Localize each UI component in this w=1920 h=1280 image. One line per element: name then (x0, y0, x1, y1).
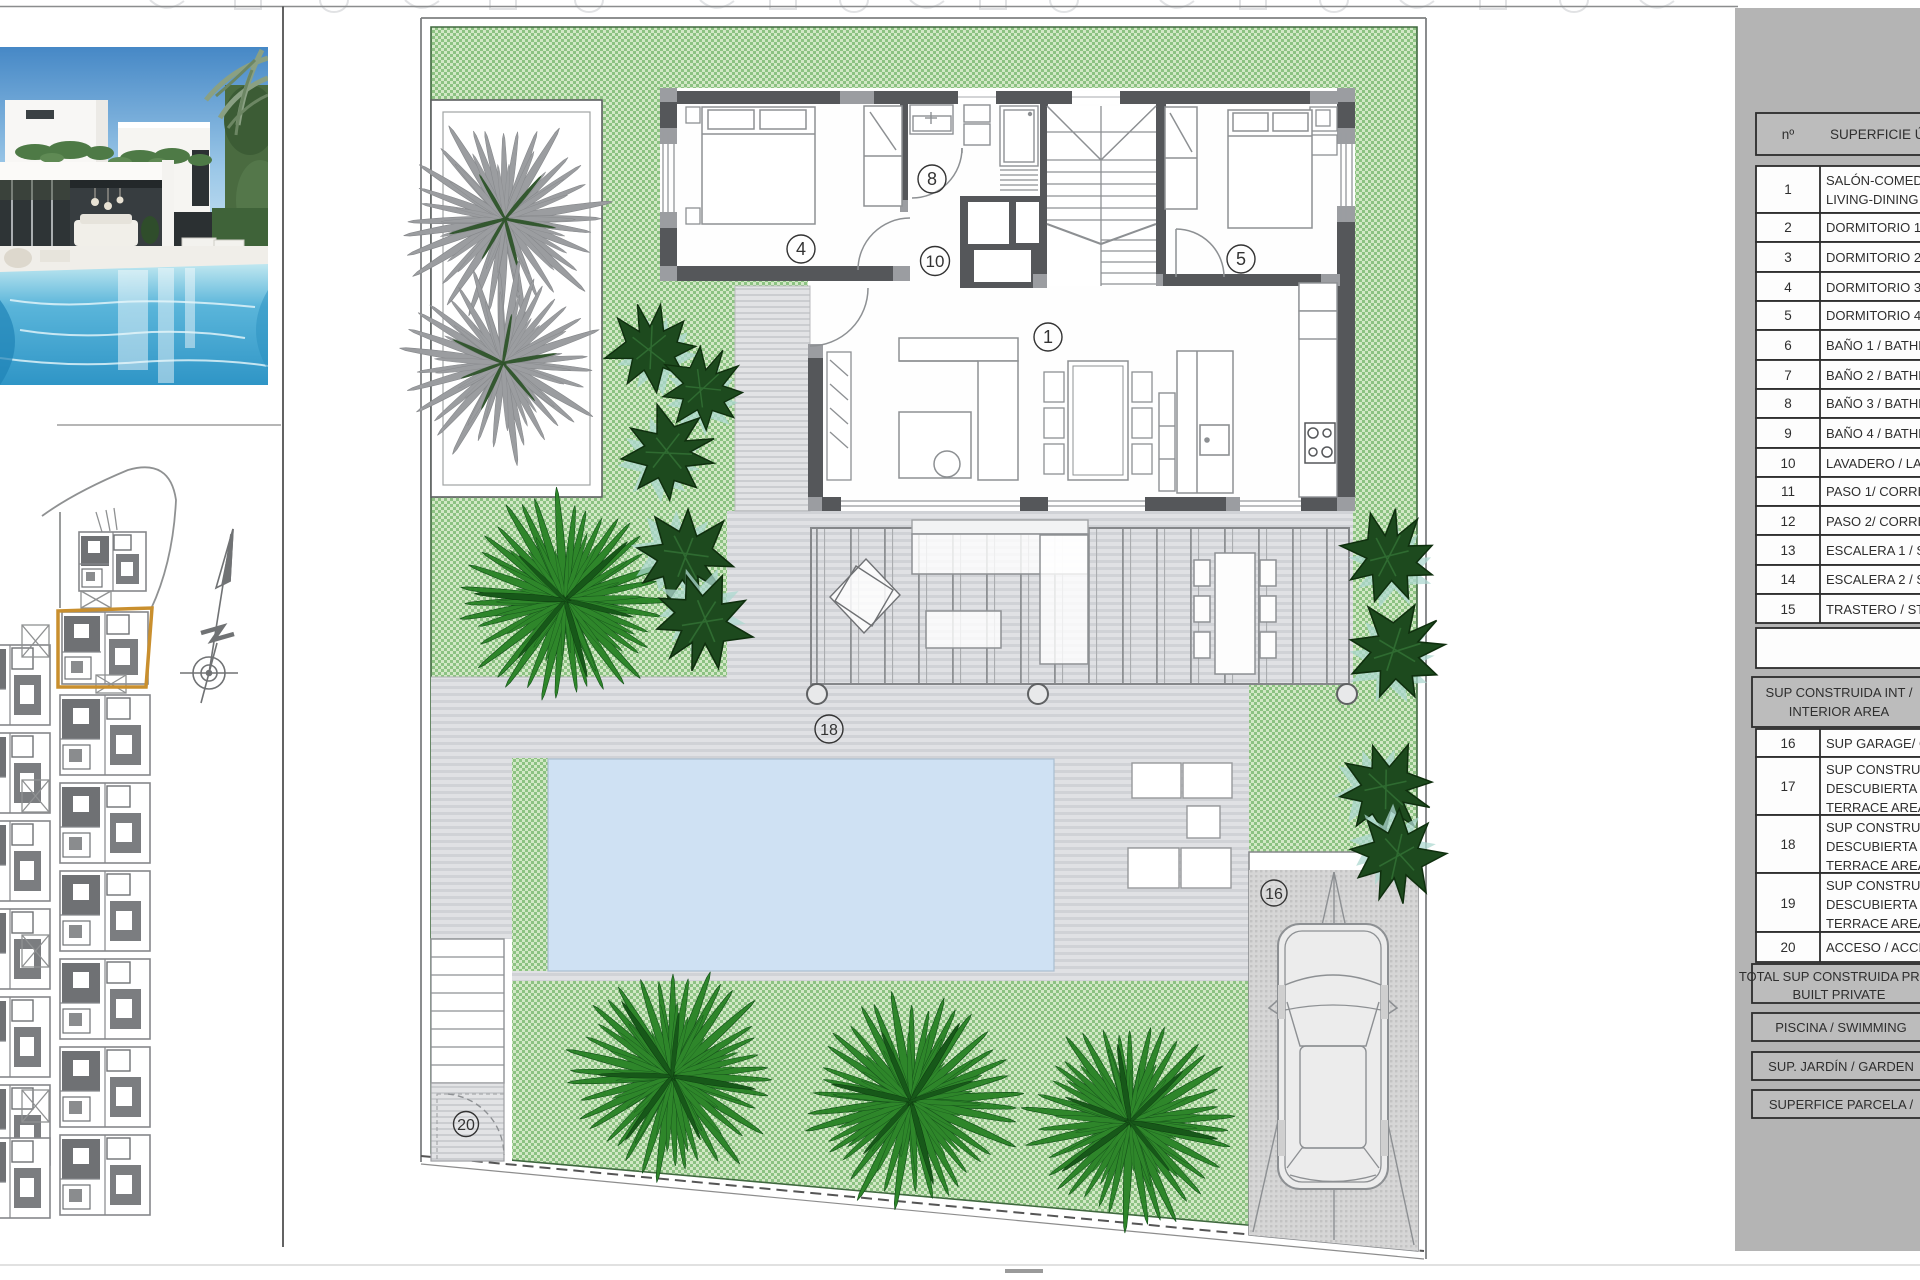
svg-text:1: 1 (1784, 182, 1792, 197)
svg-text:15: 15 (1780, 602, 1795, 617)
svg-text:12: 12 (1780, 514, 1795, 529)
svg-text:16: 16 (1265, 886, 1283, 903)
svg-text:TERRACE AREA 3: TERRACE AREA 3 (1826, 916, 1920, 931)
svg-text:BAÑO 4 / BATHROOM 4: BAÑO 4 / BATHROOM 4 (1826, 426, 1920, 441)
svg-text:TERRACE AREA 2: TERRACE AREA 2 (1826, 858, 1920, 873)
svg-text:3: 3 (1784, 250, 1792, 265)
svg-text:PASO 2/ CORRIDOR 2: PASO 2/ CORRIDOR 2 (1826, 514, 1920, 529)
svg-text:SALÓN-COMEDOR /: SALÓN-COMEDOR / (1826, 173, 1920, 188)
svg-text:BAÑO 3 / BATHROOM 3: BAÑO 3 / BATHROOM 3 (1826, 396, 1920, 411)
svg-text:DORMITORIO 4 / BEDROOM: DORMITORIO 4 / BEDROOM (1826, 308, 1920, 323)
svg-text:PASO 1/ CORRIDOR 1: PASO 1/ CORRIDOR 1 (1826, 484, 1920, 499)
svg-text:11: 11 (1781, 484, 1795, 499)
svg-text:BUILT PRIVATE: BUILT PRIVATE (1793, 987, 1886, 1002)
svg-text:BAÑO 2 / BATHROOM 2: BAÑO 2 / BATHROOM 2 (1826, 368, 1920, 383)
svg-text:4: 4 (796, 239, 806, 259)
svg-text:INTERIOR AREA: INTERIOR AREA (1789, 704, 1890, 719)
svg-text:SUP CONSTRUIDA INT /: SUP CONSTRUIDA INT / (1766, 685, 1913, 700)
svg-text:5: 5 (1784, 308, 1792, 323)
svg-text:2: 2 (1784, 220, 1792, 235)
svg-text:ACCESO / ACCESS: ACCESO / ACCESS (1826, 940, 1920, 955)
svg-text:9: 9 (1784, 426, 1792, 441)
svg-text:13: 13 (1780, 543, 1795, 558)
svg-text:19: 19 (1780, 896, 1795, 911)
svg-text:14: 14 (1780, 572, 1796, 587)
svg-text:SUP GARAGE/ GARAGE: SUP GARAGE/ GARAGE (1826, 736, 1920, 751)
svg-text:ESCALERA 1 / STAIRS 1: ESCALERA 1 / STAIRS 1 (1826, 543, 1920, 558)
svg-text:SUP CONSTRUIDA: SUP CONSTRUIDA (1826, 820, 1920, 835)
svg-text:DORMITORIO 3 / BEDROOM: DORMITORIO 3 / BEDROOM (1826, 280, 1920, 295)
svg-text:18: 18 (820, 722, 838, 739)
svg-text:DESCUBIERTA 1 /: DESCUBIERTA 1 / (1826, 781, 1920, 796)
svg-text:BAÑO 1 / BATHROOM 1: BAÑO 1 / BATHROOM 1 (1826, 338, 1920, 353)
svg-text:10: 10 (1780, 456, 1795, 471)
svg-text:1: 1 (1043, 327, 1053, 347)
svg-text:LIVING-DINING ROOM: LIVING-DINING ROOM (1826, 192, 1920, 207)
svg-text:SUP CONSTRUIDA: SUP CONSTRUIDA (1826, 762, 1920, 777)
svg-text:ESCALERA 2 / STAIRS 2: ESCALERA 2 / STAIRS 2 (1826, 572, 1920, 587)
svg-text:TRASTERO / STORAGE: TRASTERO / STORAGE (1826, 602, 1920, 617)
svg-text:4: 4 (1784, 280, 1792, 295)
svg-text:10: 10 (926, 252, 945, 271)
svg-text:16: 16 (1780, 736, 1795, 751)
svg-text:LAVADERO / LAUNDRY: LAVADERO / LAUNDRY (1826, 456, 1920, 471)
svg-text:DORMITORIO 1 / BEDROOM: DORMITORIO 1 / BEDROOM (1826, 220, 1920, 235)
svg-text:7: 7 (1784, 368, 1792, 383)
svg-text:17: 17 (1780, 779, 1795, 794)
svg-text:SUPERFICE PARCELA /: SUPERFICE PARCELA / (1769, 1097, 1914, 1112)
svg-text:SUP. JARDÍN / GARDEN: SUP. JARDÍN / GARDEN (1768, 1059, 1914, 1074)
svg-text:6: 6 (1784, 338, 1792, 353)
svg-text:5: 5 (1236, 249, 1246, 269)
svg-text:DESCUBIERTA 2 /: DESCUBIERTA 2 / (1826, 839, 1920, 854)
svg-text:SUP CONSTRUIDA: SUP CONSTRUIDA (1826, 878, 1920, 893)
svg-text:DORMITORIO 2 / BEDROOM: DORMITORIO 2 / BEDROOM (1826, 250, 1920, 265)
svg-text:SUPERFICIE ÚTIL: SUPERFICIE ÚTIL (1830, 127, 1920, 142)
svg-text:20: 20 (457, 1117, 475, 1134)
svg-text:TOTAL SUP CONSTRUIDA PRIV /: TOTAL SUP CONSTRUIDA PRIV / (1739, 969, 1920, 984)
svg-text:20: 20 (1780, 940, 1795, 955)
svg-text:TERRACE AREA 1: TERRACE AREA 1 (1826, 800, 1920, 815)
svg-text:8: 8 (927, 169, 937, 189)
svg-text:18: 18 (1780, 837, 1795, 852)
svg-text:PISCINA / SWIMMING: PISCINA / SWIMMING (1775, 1020, 1906, 1035)
svg-text:8: 8 (1784, 396, 1792, 411)
svg-text:nº: nº (1782, 127, 1795, 142)
svg-text:DESCUBIERTA 3 /: DESCUBIERTA 3 / (1826, 897, 1920, 912)
